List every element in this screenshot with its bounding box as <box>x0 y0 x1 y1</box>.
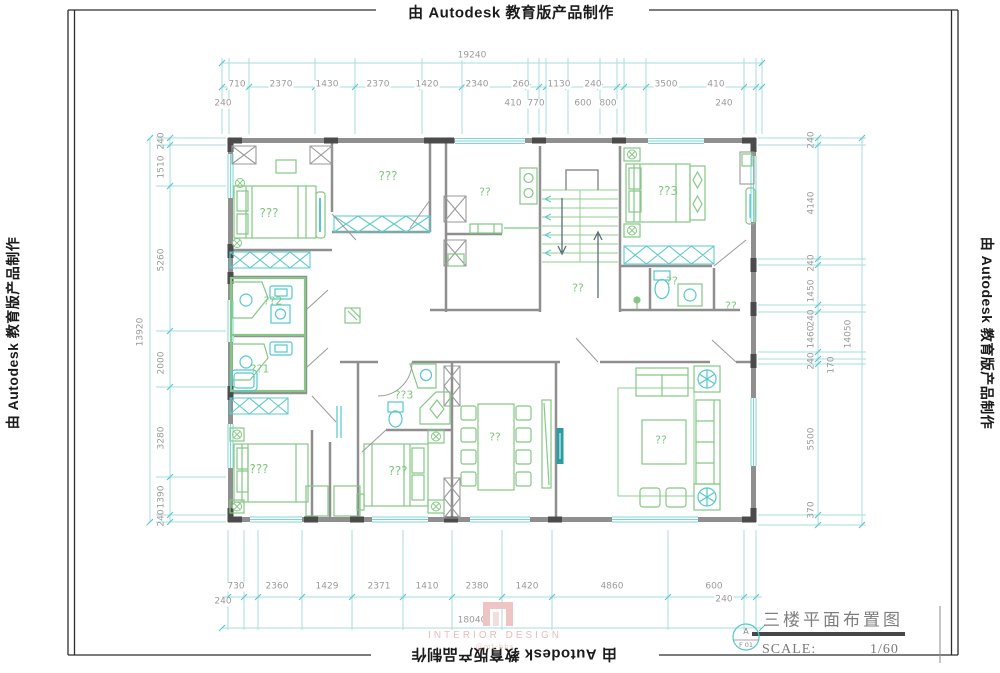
dim-right-seg: 240 <box>808 253 817 272</box>
dim-top-seg: 410 <box>706 81 725 90</box>
dim-top-seg: 260 <box>511 81 530 90</box>
room-label-bedroom-bottom-left: ??? <box>249 463 268 475</box>
dim-top-seg: 1130 <box>547 81 572 90</box>
plumbing-fixtures <box>231 194 750 506</box>
dim-left-seg: 3280 <box>158 426 167 451</box>
dim-left-total: 13920 <box>137 317 146 348</box>
dim-top-seg: 1430 <box>315 81 340 90</box>
dim-bottom-seg: 1420 <box>515 583 540 592</box>
dim-top-seg: 710 <box>227 81 246 90</box>
dim-bottom-seg: 2360 <box>265 583 290 592</box>
watermark-left: 由 Autodesk 教育版产品制作 <box>3 237 23 430</box>
logo-brand-text: INTERIOR DESIGN <box>420 630 570 641</box>
dim-top-sub: 240 <box>714 100 733 109</box>
dim-top-seg: 2370 <box>269 81 294 90</box>
dim-bottom-seg: 1410 <box>415 583 440 592</box>
watermark-right: 由 Autodesk 教育版产品制作 <box>977 237 997 430</box>
dim-left-seg: 240 <box>158 131 167 150</box>
dim-right-seg: 370 <box>808 500 817 519</box>
room-label-bedroom-top-right: ??3 <box>658 185 678 197</box>
furniture <box>230 148 755 516</box>
dim-right-seg: 170 <box>828 355 837 374</box>
room-label-dining: ?? <box>489 432 501 443</box>
reference-bubble-letter: A <box>743 628 748 636</box>
dim-left-seg: 1510 <box>158 155 167 180</box>
dim-left-seg: 5260 <box>158 248 167 273</box>
dim-top-sub: 410 <box>503 100 522 109</box>
dim-top-seg: 2370 <box>366 81 391 90</box>
room-label-hall-right: ?? <box>725 301 737 312</box>
stair-landing-rail <box>566 170 598 190</box>
room-label-bedroom-top-left: ??? <box>259 207 278 219</box>
dim-right-seg: 4140 <box>808 191 817 216</box>
room-label-stair-hall: ?? <box>572 283 584 294</box>
dim-left-seg: 1390 <box>158 485 167 510</box>
dim-bottom-end-left: 240 <box>213 598 232 607</box>
dim-top-sub: 770 <box>526 100 545 109</box>
dim-right-seg: 1450 <box>808 279 817 304</box>
reference-bubble-code: F 01 <box>739 642 753 649</box>
wardrobe-closets <box>230 216 714 414</box>
dim-left-seg: 2000 <box>158 351 167 376</box>
dim-bottom-seg: 600 <box>704 583 723 592</box>
room-label-kitchen: ?? <box>479 187 491 198</box>
room-label-bath-1: ??1 <box>251 364 270 375</box>
dim-top-seg: 2340 <box>465 81 490 90</box>
dim-bottom-seg: 2371 <box>367 583 392 592</box>
dim-top-seg: 1420 <box>415 81 440 90</box>
staircase <box>542 170 618 298</box>
dim-right-seg: 240 <box>808 130 817 149</box>
dim-top-total: 19240 <box>457 52 488 61</box>
dim-top-seg: 240 <box>583 81 602 90</box>
dim-right-seg: 5500 <box>808 427 817 452</box>
dim-right-total: 14050 <box>845 319 854 350</box>
dim-right-seg: 1460 <box>808 325 817 350</box>
room-label-bedroom-mid: ??? <box>388 465 407 477</box>
dim-top-sub: 240 <box>213 100 232 109</box>
dim-right-seg: 240 <box>808 351 817 370</box>
dim-bottom-seg: 2380 <box>465 583 490 592</box>
wall-light-symbols <box>233 150 637 511</box>
room-label-bath-2: ??2 <box>264 296 283 307</box>
dim-bottom-seg: 730 <box>226 583 245 592</box>
interior-design-logo: INTERIOR DESIGN @mt-bbs <box>420 597 570 657</box>
dim-top-seg: 3500 <box>654 81 679 90</box>
logo-handle-text: @mt-bbs <box>420 643 570 651</box>
dim-top-sub: 600 <box>573 100 592 109</box>
dim-bottom-end-right: 240 <box>714 596 733 605</box>
watermark-top: 由 Autodesk 教育版产品制作 <box>408 2 614 23</box>
scale-value: 1/60 <box>870 642 899 658</box>
dim-left-seg: 240 <box>158 508 167 527</box>
room-label-closet-room: ??? <box>378 170 397 182</box>
scale-label: SCALE: <box>762 642 816 658</box>
room-label-living: ?? <box>655 435 667 446</box>
dim-bottom-seg: 1429 <box>315 583 340 592</box>
room-label-bath-right: ?? <box>666 276 678 287</box>
dim-top-sub: 800 <box>598 100 617 109</box>
drawing-title: 三楼平面布置图 <box>763 606 903 631</box>
room-label-bath-3: ??3 <box>395 390 414 401</box>
door-swings <box>306 200 746 452</box>
dim-bottom-seg: 4860 <box>600 583 625 592</box>
